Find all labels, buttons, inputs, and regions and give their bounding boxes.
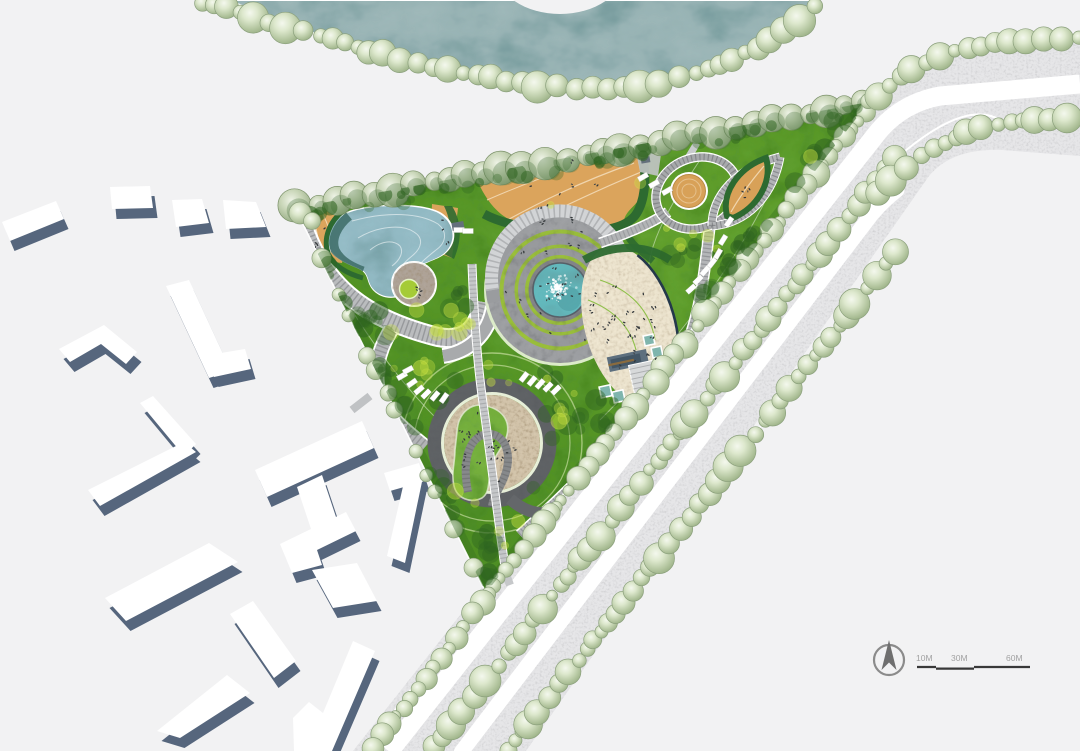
svg-text:60M: 60M <box>1006 653 1023 663</box>
svg-text:30M: 30M <box>951 653 968 663</box>
svg-text:10M: 10M <box>916 653 933 663</box>
